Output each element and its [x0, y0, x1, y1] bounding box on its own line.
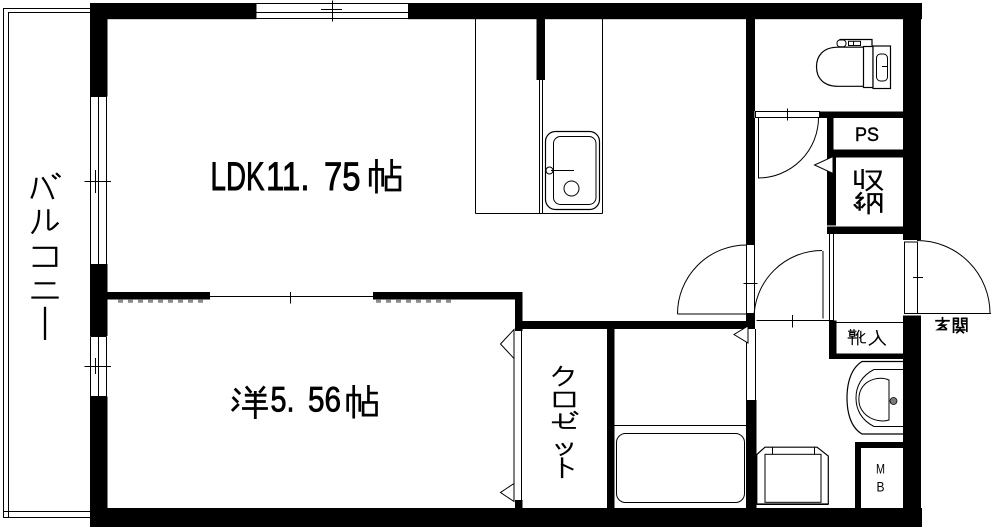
- svg-text:56: 56: [308, 381, 341, 420]
- svg-text:B: B: [877, 479, 885, 495]
- svg-text:5.: 5.: [271, 381, 295, 420]
- svg-text:PS: PS: [855, 125, 879, 146]
- svg-text:LDK: LDK: [211, 155, 265, 199]
- svg-text:75: 75: [324, 155, 361, 199]
- svg-text:M: M: [876, 461, 885, 477]
- svg-text:11.: 11.: [266, 155, 310, 199]
